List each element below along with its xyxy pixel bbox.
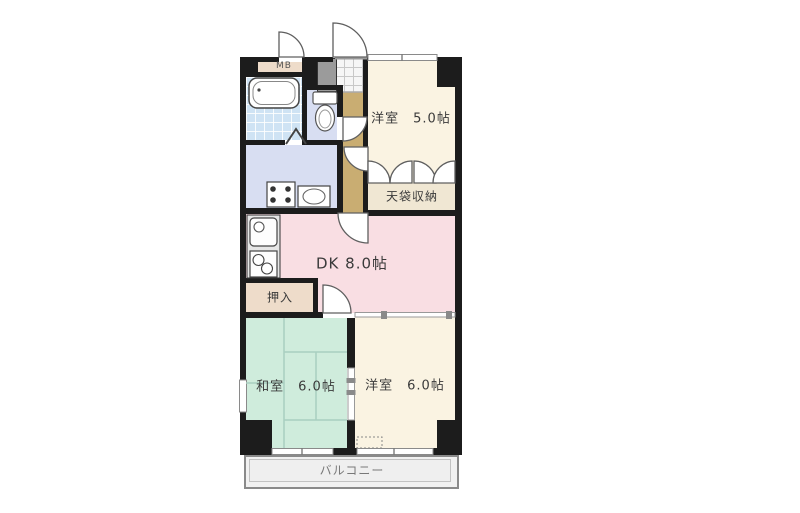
wall-bottom-a bbox=[240, 448, 272, 455]
wall-storage-bottom bbox=[363, 210, 455, 216]
wall-washitsu-bedroom6-upper bbox=[347, 318, 355, 368]
toilet-room-area bbox=[307, 90, 337, 140]
bathroom-area bbox=[246, 77, 302, 140]
wall-washroom-bottom bbox=[246, 208, 343, 214]
window-bedroom6-balcony bbox=[357, 449, 433, 455]
pillar-bottom-right bbox=[437, 420, 462, 448]
wall-bath-washroom bbox=[246, 140, 285, 145]
bedroom6-label: 洋室 6.0帖 bbox=[365, 375, 445, 394]
wall-bottom-c bbox=[433, 448, 462, 455]
bedroom5-label: 洋室 5.0帖 bbox=[371, 108, 451, 127]
wall-toilet-bottom bbox=[307, 140, 343, 145]
fusuma-washitsu-bedroom6 bbox=[348, 368, 355, 420]
window-washitsu-balcony bbox=[272, 449, 333, 455]
wall-hall-right-a bbox=[363, 57, 368, 147]
pillar-top-right bbox=[437, 57, 462, 87]
dk-label: DK 8.0帖 bbox=[316, 253, 388, 274]
balcony-label: バルコニー bbox=[320, 462, 385, 479]
wall-toilet-left bbox=[302, 90, 307, 145]
wall-oshiire-top bbox=[246, 278, 318, 283]
floorplan: MB 洋室 5.0帖 天袋収納 DK 8.0帖 押入 和室 6.0帖 洋室 6.… bbox=[0, 0, 800, 513]
hallway-area bbox=[343, 92, 363, 213]
oshiire-label: 押入 bbox=[267, 289, 293, 306]
wall-bottom-b bbox=[333, 448, 357, 455]
wall-washitsu-bedroom6-lower bbox=[347, 420, 355, 448]
washitsu-label: 和室 6.0帖 bbox=[256, 376, 336, 395]
wall-above-toilet bbox=[302, 57, 317, 90]
wall-mb-left bbox=[246, 57, 258, 72]
wall-oshiire-bottom bbox=[246, 312, 323, 318]
pillar-bottom-left bbox=[246, 420, 272, 448]
entrance-door-arc bbox=[333, 23, 367, 57]
wall-hall-left-b bbox=[337, 141, 343, 213]
mb-door-arc bbox=[279, 32, 304, 57]
wall-right bbox=[455, 57, 462, 455]
storage-label: 天袋収納 bbox=[386, 188, 438, 205]
mb-label: MB bbox=[276, 61, 292, 71]
wall-hall-left-a bbox=[337, 90, 343, 117]
wall-left-upper bbox=[240, 57, 246, 380]
washroom-area bbox=[246, 145, 337, 208]
